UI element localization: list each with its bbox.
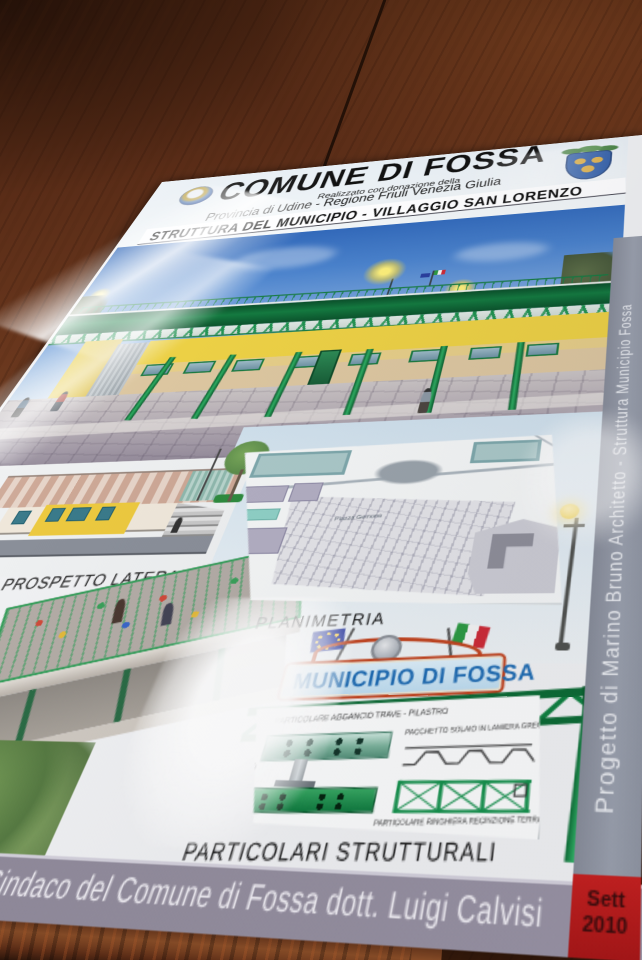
detail-beam-label: PARTICOLARE AGGANCIO TRAVE - PILASTRO [274,708,449,727]
window [526,343,560,357]
plan-block [470,439,542,463]
flag-italy-icon [433,270,445,275]
cloud [229,243,340,272]
detail-column [289,759,309,782]
beam-column-detail-b [238,787,378,813]
beam-column-detail-a [260,731,392,761]
cloud [453,239,550,264]
structural-details-panel: PARTICOLARE AGGANCIO TRAVE - PILASTRO A … [210,688,553,847]
date-stamp: Sett 2010 [568,874,641,960]
date-stamp-month: Sett [571,887,641,916]
detail-marker-a: A [241,761,258,775]
date-stamp-year: 2010 [569,912,641,943]
plan-block [249,450,352,478]
detail-marker-b: B [218,810,236,825]
lamp-glow [358,257,411,287]
window [468,346,502,360]
street-lamp-base [555,643,570,651]
municipal-seal-icon [174,185,218,207]
flag-europe-icon [420,273,430,278]
detail-flange [274,780,316,787]
detail-slab-label: PACCHETTO SOLAIO IN LAMIERA GRECATA [405,721,556,738]
detail-railing-label: PARTICOLARE RINGHIERA RECINZIONE TERRAZZ… [373,815,557,829]
photo-scene: COMUNE DI FOSSA Realizzato con donazione… [0,0,642,960]
street-lamp-arm [564,524,585,528]
